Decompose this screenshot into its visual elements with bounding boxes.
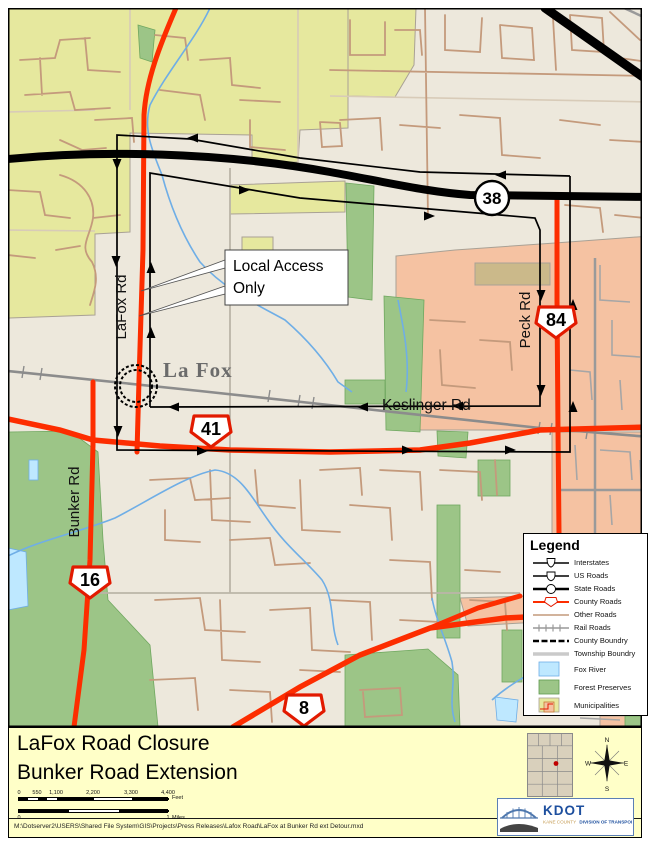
compass-rose: N E S W [585,734,629,799]
legend-title: Legend [530,537,645,553]
fox-river-swatch [528,661,574,677]
legend-item-interstates: Interstates [528,556,645,569]
logo-division: DIVISION OF TRANSPORTATION [579,820,632,825]
legend-item-township-boundary: Township Boundry [528,647,645,660]
legend-item-municipalities: Municipalities [528,696,645,714]
scale-tick: 3,300 [124,790,138,796]
legend-item-us-roads: US Roads [528,569,645,582]
route-41-number: 41 [201,419,221,439]
scale-bar: 0 550 1,100 2,200 3,300 4,400 Feet 0 1 M… [18,790,228,824]
scale-tick: 1 [166,815,169,821]
keslinger-rd-label: Keslinger Rd [382,397,471,414]
svg-text:KANE COUNTY DIVISION: KANE COUNTY DIVISION OF TRANSPORTATION [543,820,632,825]
legend-item-other-roads: Other Roads [528,608,645,621]
forest-preserve-swatch [528,679,574,695]
legend-item-county-boundary: County Boundry [528,634,645,647]
road-swoosh-icon [500,824,538,832]
compass-s: S [605,786,610,793]
location-dot [554,761,559,766]
compass-w: W [585,761,592,768]
scale-tick: 550 [32,790,41,796]
location-inset-map [527,733,573,802]
municipalities-swatch [528,697,574,713]
document-path: M:\Dotserver2\USERS\Shared File System\G… [14,823,363,830]
interstate-symbol-icon [528,557,574,569]
peck-road [557,196,559,533]
feet-bar [18,797,168,801]
scale-tick: 0 [17,815,20,821]
legend-item-state-roads: State Roads [528,582,645,595]
route-16-number: 16 [80,570,100,590]
compass-e: E [624,761,629,768]
legend-item-fox-river: Fox River [528,660,645,678]
lafox-town-label: La Fox [163,358,233,382]
route-84-number: 84 [546,310,566,330]
scale-unit-feet: Feet [172,795,183,801]
us-road-symbol-icon [528,570,574,582]
scale-unit-miles: Miles [172,815,185,821]
legend-item-county-roads: County Roads [528,595,645,608]
peck-rd-label: Peck Rd [517,292,534,349]
logo-org: KANE COUNTY [543,820,576,825]
township-boundary-symbol-icon [528,648,574,660]
scale-tick: 1,100 [49,790,63,796]
lafox-rd-label: LaFox Rd [113,274,130,339]
miles-bar [18,809,168,813]
other-road-symbol-icon [528,609,574,621]
callout-text-line2: Only [233,280,265,297]
railroad-symbol-icon [528,622,574,634]
map-title-line1: LaFox Road Closure [17,732,210,756]
route-38-number: 38 [483,189,502,208]
callout-text-line1: Local Access [233,258,324,275]
map-title-line2: Bunker Road Extension [17,761,238,785]
county-boundary-symbol-icon [528,635,574,647]
legend-item-forest-preserves: Forest Preserves [528,678,645,696]
legend: Legend Interstates US Roads State Roads … [523,533,648,716]
county-road-symbol-icon [528,596,574,608]
state-road-symbol-icon [528,583,574,595]
page: Local Access Only 38 84 41 16 8 LaFox Rd… [0,0,650,841]
logo-acronym: KDOT [543,803,585,818]
legend-item-rail-roads: Rail Roads [528,621,645,634]
scale-tick: 2,200 [86,790,100,796]
title-bar: LaFox Road Closure Bunker Road Extension… [8,727,642,838]
bunker-rd-label: Bunker Rd [66,467,83,538]
scale-tick: 0 [17,790,20,796]
kdot-logo: KDOT KANE COUNTY DIVISION OF TRANSPORTAT… [497,798,634,836]
route-8-number: 8 [299,698,309,718]
compass-n: N [605,737,610,744]
